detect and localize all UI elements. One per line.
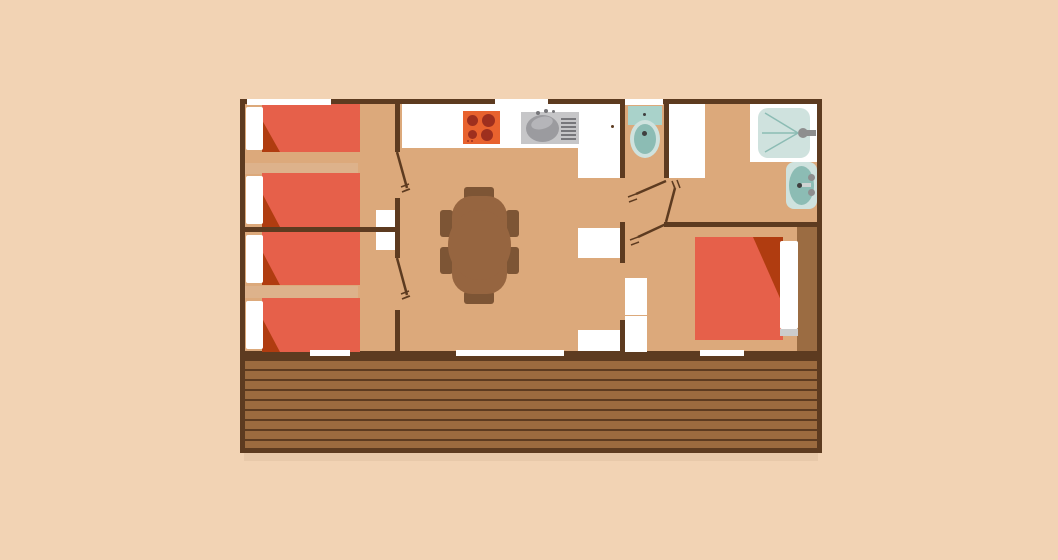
interior-wall (620, 222, 625, 263)
bed-pillow-shadow (780, 329, 798, 336)
interior-wall (620, 320, 625, 352)
window (625, 99, 663, 105)
sink-drainboard (561, 118, 576, 142)
closet (376, 232, 396, 250)
stove-burner (481, 129, 493, 141)
kitchen-counter-side (578, 148, 620, 178)
washbasin-tap (808, 174, 815, 181)
stove-knob (471, 140, 473, 142)
bed-pillow (246, 107, 263, 150)
closet (376, 210, 396, 227)
interior-wall (244, 227, 400, 232)
toilet-button (643, 113, 646, 116)
washbasin-faucet (802, 183, 811, 187)
interior-wall (395, 104, 400, 152)
kitchen-counter (402, 104, 620, 148)
stove-knob (467, 140, 469, 142)
floor-plan-canvas (0, 0, 1058, 560)
interior-wall (664, 222, 817, 227)
interior-wall (620, 104, 625, 178)
bed-blanket (262, 104, 360, 152)
stove-burner (482, 114, 495, 127)
bed-pillow (780, 241, 798, 329)
shower-head (798, 128, 808, 138)
stove-burner (467, 115, 478, 126)
toilet-seat-hinge (642, 131, 647, 136)
bed-pillow (246, 301, 263, 349)
interior-wall (664, 104, 669, 178)
sink-faucet (536, 111, 540, 115)
cabinet (578, 228, 620, 258)
sink-faucet (552, 110, 555, 113)
interior-wall (395, 310, 400, 352)
dining-table-top (448, 210, 511, 280)
closet (625, 316, 647, 352)
bed-divider (245, 286, 358, 298)
deck (240, 356, 822, 453)
sink-faucet (544, 109, 548, 113)
deck-shadow (244, 453, 818, 461)
stove-burner (468, 130, 477, 139)
interior-wall (395, 198, 400, 258)
bed-blanket (262, 232, 360, 285)
window (495, 99, 548, 105)
bed-pillow (246, 176, 263, 224)
window (247, 99, 331, 105)
bed-blanket (262, 173, 360, 227)
bed-pillow (246, 235, 263, 283)
wardrobe (797, 227, 817, 351)
washbasin-tap (808, 189, 815, 196)
bed-blanket (262, 298, 360, 352)
cabinet (578, 330, 620, 351)
closet (625, 278, 647, 315)
cabinet-knob (611, 125, 614, 128)
toilet-bowl-inner (634, 124, 656, 154)
closet (669, 104, 705, 178)
